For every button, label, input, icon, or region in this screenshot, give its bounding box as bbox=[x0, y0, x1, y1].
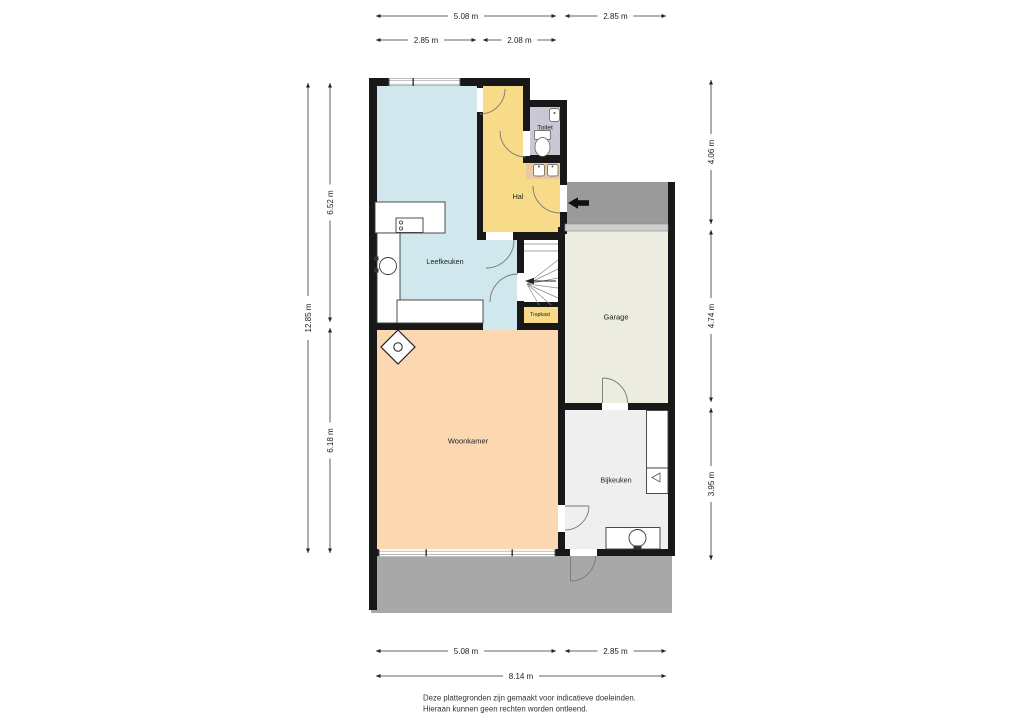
label-garage: Garage bbox=[603, 313, 628, 322]
dim-right-1: 4.06 m bbox=[707, 139, 716, 164]
dim-top-2: 2.85 m bbox=[603, 12, 628, 21]
window-top bbox=[388, 78, 461, 85]
door-opening-toilet bbox=[523, 131, 530, 156]
door-opening-woonkamer-bijkeuken bbox=[558, 505, 565, 532]
label-woonkamer: Woonkamer bbox=[448, 437, 489, 446]
bijkeuken-sink-icon bbox=[606, 528, 660, 550]
dim-left-inner-1: 6.52 m bbox=[326, 190, 335, 215]
garage-door bbox=[565, 224, 668, 231]
footer-line-2: Hieraan kunnen geen rechten worden ontle… bbox=[423, 705, 588, 714]
kitchen-counter-bottom bbox=[397, 300, 483, 323]
dim-left-total: 12.85 m bbox=[304, 303, 313, 332]
footer-disclaimer: Deze plattegronden zijn gemaakt voor ind… bbox=[423, 694, 636, 714]
dim-bottom-1: 5.08 m bbox=[454, 647, 479, 656]
kitchen-counter-left bbox=[377, 233, 400, 323]
floor-plan-page: Toilet Hal Leefkeuken Trapkast Garage Wo… bbox=[0, 0, 1024, 724]
terrace bbox=[371, 552, 672, 613]
label-hal: Hal bbox=[513, 192, 524, 201]
label-leefkeuken: Leefkeuken bbox=[426, 257, 463, 266]
staircase-floor bbox=[520, 236, 560, 305]
dim-right-2: 4.74 m bbox=[707, 303, 716, 328]
dim-top-1: 5.08 m bbox=[454, 12, 479, 21]
toilet-sink-icon bbox=[550, 109, 560, 122]
cooktop-icon bbox=[396, 218, 423, 233]
window-woonkamer-bottom bbox=[378, 549, 556, 556]
bijkeuken-appliance bbox=[647, 468, 669, 494]
dim-bottom-total: 8.14 m bbox=[509, 672, 534, 681]
toilet-icon bbox=[535, 131, 551, 157]
dim-right-3: 3.95 m bbox=[707, 471, 716, 496]
label-toilet: Toilet bbox=[537, 125, 553, 132]
dim-bottom-2: 2.85 m bbox=[603, 647, 628, 656]
dim-top-inner-1: 2.85 m bbox=[414, 36, 439, 45]
door-opening-hal-leefkeuken-bottom bbox=[486, 232, 513, 240]
door-opening-garage-bijkeuken bbox=[602, 403, 628, 410]
dim-left-inner-2: 6.18 m bbox=[326, 428, 335, 453]
footer-line-1: Deze plattegronden zijn gemaakt voor ind… bbox=[423, 694, 636, 703]
door-opening-entrance bbox=[560, 185, 567, 212]
door-opening-bijkeuken-terrace bbox=[570, 549, 597, 556]
door-opening-hal-leefkeuken-top bbox=[477, 88, 483, 112]
floor-plan: Toilet Hal Leefkeuken Trapkast Garage Wo… bbox=[0, 0, 1024, 724]
door-opening-stairs bbox=[517, 273, 524, 301]
label-bijkeuken: Bijkeuken bbox=[600, 476, 631, 485]
dim-top-inner-2: 2.08 m bbox=[507, 36, 532, 45]
bijkeuken-counter-top bbox=[647, 411, 669, 469]
label-trapkast: Trapkast bbox=[530, 312, 551, 318]
